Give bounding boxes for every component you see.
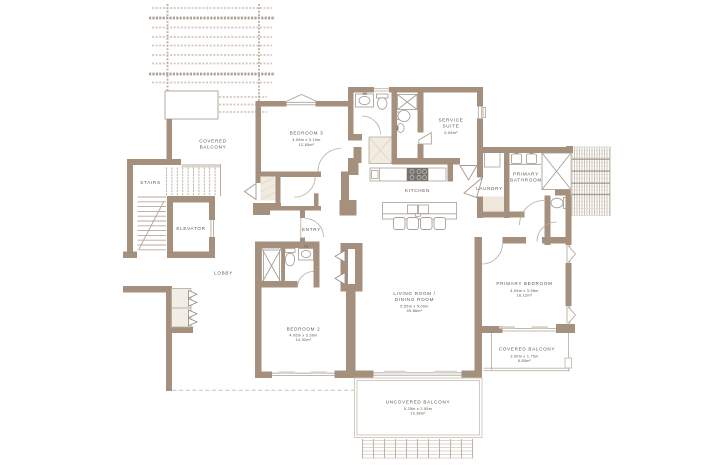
svg-text:COVERED: COVERED [199, 139, 227, 144]
svg-text:BEDROOM 2: BEDROOM 2 [287, 327, 321, 332]
svg-text:SUITE: SUITE [442, 124, 459, 129]
svg-text:4.05m x 3.96m: 4.05m x 3.96m [510, 289, 538, 293]
svg-text:KITCHEN: KITCHEN [405, 188, 430, 193]
svg-text:ELEVATOR: ELEVATOR [176, 226, 205, 231]
svg-text:4.08m x 3.10m: 4.08m x 3.10m [292, 138, 320, 142]
svg-text:12.65m²: 12.65m² [299, 143, 315, 147]
svg-text:6.85m²: 6.85m² [518, 359, 532, 363]
svg-text:LIVING ROOM /: LIVING ROOM / [393, 291, 435, 296]
svg-text:13.38m²: 13.38m² [410, 412, 426, 416]
svg-text:5.55m x 5.00m: 5.55m x 5.00m [400, 305, 428, 309]
svg-text:14.92m²: 14.92m² [296, 338, 312, 342]
svg-text:SERVICE: SERVICE [439, 118, 464, 123]
svg-text:BEDROOM 3: BEDROOM 3 [290, 131, 324, 136]
svg-text:3.90m x 1.75m: 3.90m x 1.75m [510, 355, 538, 359]
svg-text:PRIMARY: PRIMARY [513, 172, 539, 177]
svg-text:BATHROOM: BATHROOM [510, 178, 542, 183]
svg-text:COVERED BALCONY: COVERED BALCONY [499, 347, 555, 352]
svg-text:UNCOVERED BALCONY: UNCOVERED BALCONY [386, 400, 450, 405]
svg-text:5.06m²: 5.06m² [444, 131, 458, 135]
svg-text:LOBBY: LOBBY [214, 271, 233, 276]
svg-text:PRIMARY BEDROOM: PRIMARY BEDROOM [496, 281, 552, 286]
svg-text:4.05m x 3.30m: 4.05m x 3.30m [289, 334, 317, 338]
svg-text:DINING ROOM: DINING ROOM [395, 297, 434, 302]
svg-text:LAUNDRY: LAUNDRY [476, 186, 503, 191]
svg-text:49.86m²: 49.86m² [407, 309, 423, 313]
svg-text:BALCONY: BALCONY [200, 145, 227, 150]
svg-text:16.12m²: 16.12m² [517, 294, 533, 298]
svg-text:ENTRY: ENTRY [302, 227, 321, 232]
svg-text:STAIRS: STAIRS [140, 180, 160, 185]
svg-text:5.25m x 2.55m: 5.25m x 2.55m [404, 407, 432, 411]
